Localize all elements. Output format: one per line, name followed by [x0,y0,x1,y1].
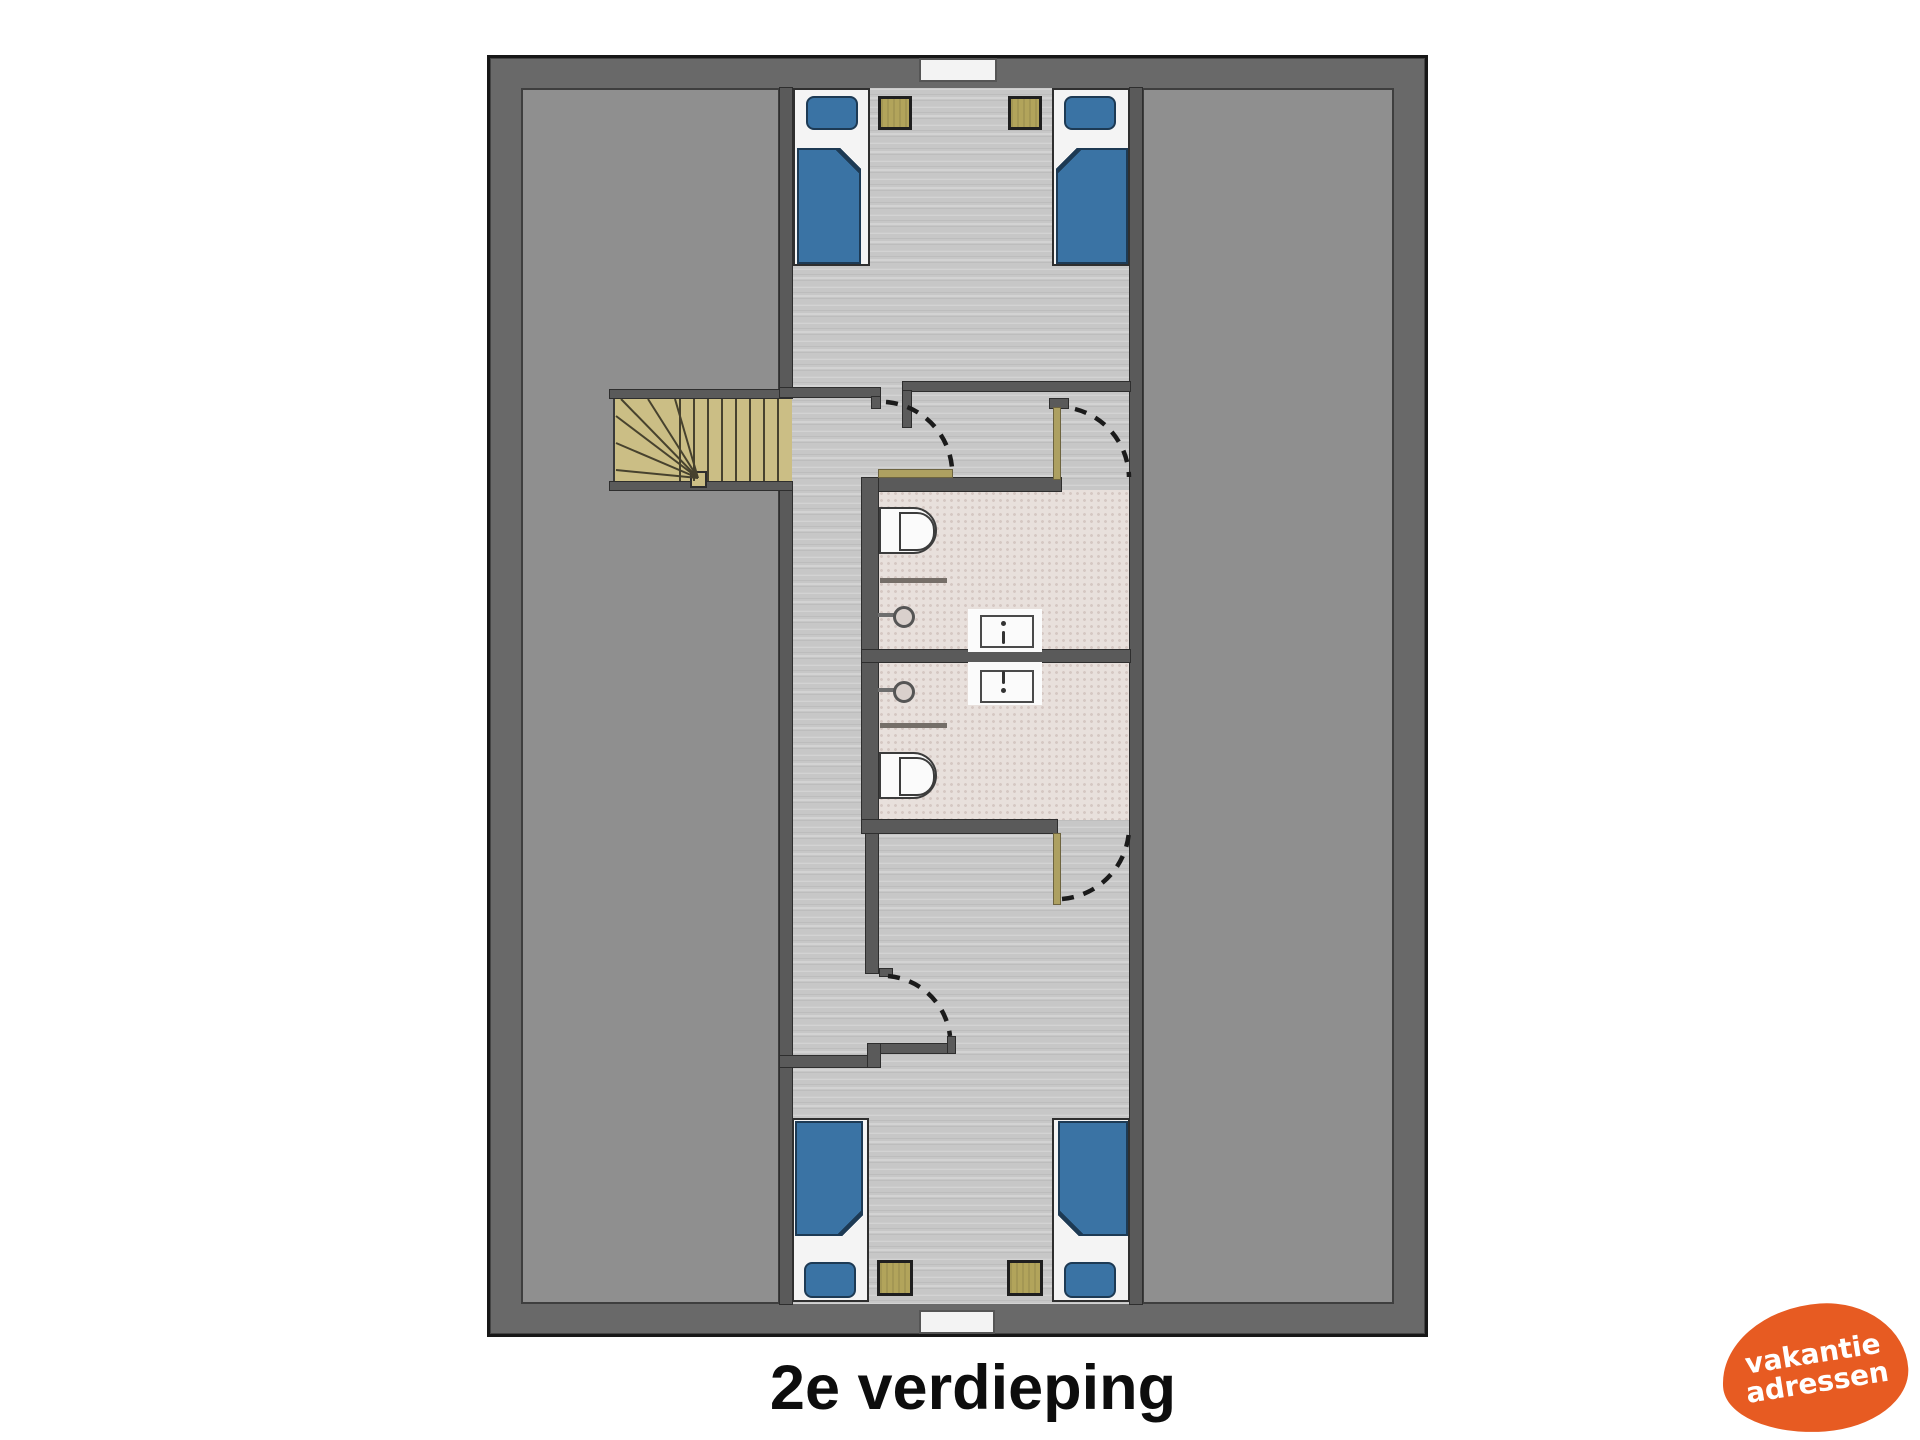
wall-top-bedroom-left-step [872,397,880,408]
door-leaf-bathroom-top [1053,407,1061,480]
vanity-basin-icon [980,670,1034,703]
window-top [919,58,997,82]
door-hinge-stub-corridor [880,969,892,976]
bed-top-left-duvet [797,148,861,264]
partition-bottom-bathroom [880,723,947,728]
nightstand-bottom-left [877,1260,913,1296]
page-title: 2e verdieping [473,1352,1473,1424]
wall-corridor-right [866,833,878,973]
wall-bathroom-top [870,478,1061,491]
tap-icon [1001,621,1006,626]
room-left [521,88,780,1304]
floorplan-page: 2e verdieping vakantie adressen [0,0,1920,1440]
partition-top-bathroom [880,578,947,583]
toilet-bottom [879,752,937,799]
bed-bottom-left-duvet [795,1121,863,1236]
window-bottom [919,1310,995,1334]
tap-icon [1001,688,1006,693]
tap-icon [1002,671,1005,684]
bed-bottom-right-duvet [1058,1121,1128,1236]
bed-bottom-right-pillow [1064,1262,1116,1298]
wall-top-bedroom-left [780,388,880,397]
washbasin-top [893,606,915,628]
vanity-top [968,609,1042,652]
bed-top-left-pillow [806,96,858,130]
wall-bottom-bedroom-left [780,1056,880,1067]
stair-newel-post [690,471,707,488]
nightstand-top-left [878,96,912,130]
toilet-bowl-icon [899,757,935,796]
wall-top-bedroom-right [903,382,1130,391]
wall-hall-right [1130,88,1142,1304]
door-leaf-hall [878,469,953,478]
staircase [613,398,792,482]
wall-bottom-bedroom-jog [868,1044,880,1067]
duvet-fold [1056,148,1082,174]
tap-icon [1002,631,1005,644]
wall-bathroom-bottom [862,820,1057,833]
room-right [1142,88,1394,1304]
bed-top-right-duvet [1056,148,1128,264]
wall-top-bedroom-right-return [903,391,911,427]
wall-stair-top [610,390,792,398]
washbasin-bottom [893,681,915,703]
duvet-fold [837,1210,863,1236]
wall-hall-left-lower [780,490,792,1304]
wall-bottom-bedroom-stub [948,1037,955,1053]
bed-top-right-pillow [1064,96,1116,130]
wall-bottom-bedroom-right [878,1044,955,1053]
duvet-fold [1058,1210,1084,1236]
toilet-top [879,507,937,554]
vanity-bottom [968,662,1042,705]
bed-bottom-left-pillow [804,1262,856,1298]
brand-logo-text: vakantie adressen [1739,1328,1890,1408]
nightstand-top-right [1008,96,1042,130]
door-leaf-bathroom-bottom [1053,833,1061,905]
brand-logo: vakantie adressen [1718,1298,1912,1439]
wall-hall-left-upper [780,88,792,394]
nightstand-bottom-right [1007,1260,1043,1296]
duvet-fold [835,148,861,174]
toilet-bowl-icon [899,512,935,551]
vanity-basin-icon [980,615,1034,648]
